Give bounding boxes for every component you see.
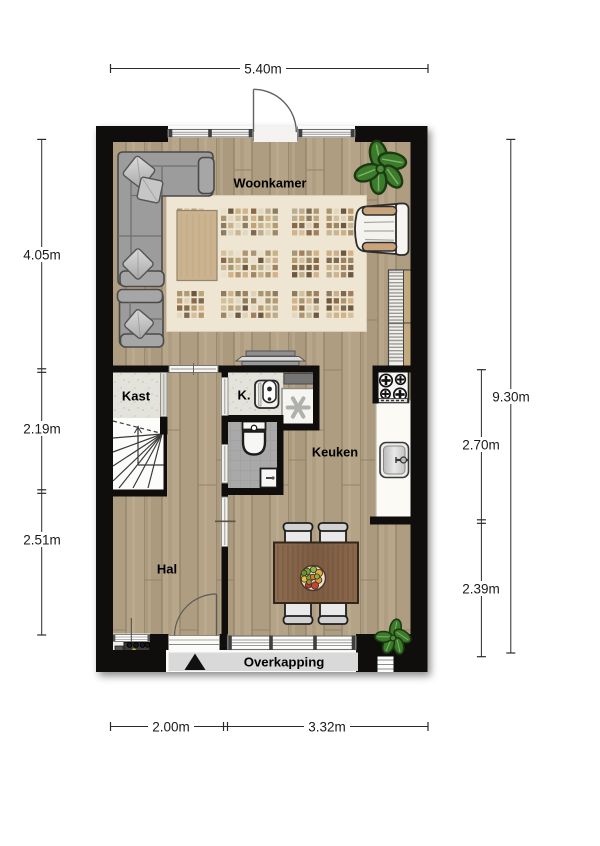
svg-text:K.: K. xyxy=(238,388,251,403)
svg-text:9.30m: 9.30m xyxy=(492,390,530,405)
svg-text:5.40m: 5.40m xyxy=(244,62,282,77)
svg-text:Woonkamer: Woonkamer xyxy=(233,176,306,191)
svg-text:2.51m: 2.51m xyxy=(23,533,61,548)
svg-text:4.05m: 4.05m xyxy=(23,248,61,263)
svg-text:3.32m: 3.32m xyxy=(308,720,346,735)
svg-text:Hal: Hal xyxy=(157,562,177,577)
svg-text:2.19m: 2.19m xyxy=(23,422,61,437)
svg-text:2.00m: 2.00m xyxy=(152,720,190,735)
svg-text:Kast: Kast xyxy=(122,389,151,404)
svg-text:Overkapping: Overkapping xyxy=(244,655,325,670)
svg-text:Keuken: Keuken xyxy=(312,445,358,460)
svg-text:2.70m: 2.70m xyxy=(462,438,500,453)
svg-text:2.39m: 2.39m xyxy=(462,582,500,597)
